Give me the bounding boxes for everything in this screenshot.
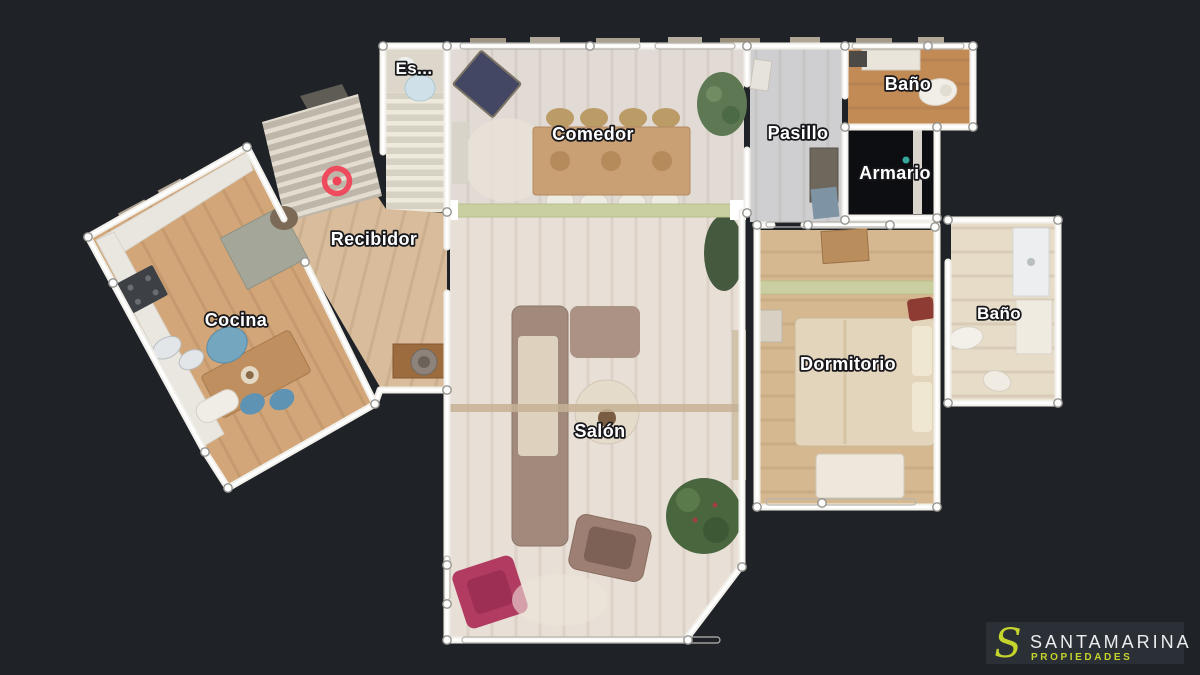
wall-handle (753, 503, 761, 511)
wall-handle (1054, 399, 1062, 407)
office-chair (411, 349, 437, 375)
sideboard (452, 122, 468, 184)
wall-handle (443, 636, 451, 644)
nightstand (760, 310, 782, 342)
wall-handle (933, 123, 941, 131)
wall-handle (84, 233, 92, 241)
wall-handle (933, 214, 941, 222)
room-label-cocina: Cocina (205, 310, 268, 330)
laundry-basket (405, 75, 435, 101)
tag-dot-icon[interactable] (333, 177, 342, 186)
wall-handle (201, 448, 209, 456)
room-label-pasillo: Pasillo (768, 123, 829, 143)
hall-cabinet (811, 187, 840, 220)
bed-bench (816, 454, 904, 498)
bedroom-table (821, 228, 869, 263)
brand-logo: S SANTAMARINA PROPIEDADES (986, 621, 1192, 667)
tall-plant (704, 215, 744, 291)
logo-tagline: PROPIEDADES (1031, 652, 1132, 663)
floorplan-view: Es... Comedor Pasillo Baño Armario Recib… (0, 0, 1200, 675)
room-label-bano-superior: Baño (885, 74, 932, 94)
bed (795, 318, 935, 446)
christmas-tree (666, 478, 742, 554)
shower (1013, 228, 1049, 296)
wall-handle (684, 636, 692, 644)
wall-handle (586, 42, 594, 50)
wall-handle (109, 279, 117, 287)
wall-handle (738, 563, 746, 571)
wall-handle (379, 42, 387, 50)
wall-handle (743, 209, 751, 217)
wall-handle (743, 42, 751, 50)
wall-handle (443, 386, 451, 394)
wall-handle (753, 221, 761, 229)
wall-handle (1054, 216, 1062, 224)
wall-handle (969, 42, 977, 50)
bath-counter (862, 50, 920, 70)
wall-handle (818, 499, 826, 507)
bath-appliance (849, 51, 867, 67)
wall-handle (443, 208, 451, 216)
wall-handle (443, 42, 451, 50)
wall-handle (933, 503, 941, 511)
room-label-bano-derecho: Baño (977, 304, 1021, 323)
wall-handle (931, 223, 939, 231)
wall-handle (969, 123, 977, 131)
wall-handle (804, 221, 812, 229)
bath2-counter (1016, 300, 1052, 354)
salon-rug (512, 574, 608, 626)
room-label-dormitorio: Dormitorio (800, 354, 896, 374)
wall-handle (944, 216, 952, 224)
wall-handle (886, 221, 894, 229)
wall-handle (841, 216, 849, 224)
wall-handle (443, 600, 451, 608)
wall-handle (841, 123, 849, 131)
hall-door (750, 59, 772, 91)
plant (697, 72, 747, 136)
wall-handle (944, 399, 952, 407)
wall-handle (243, 143, 251, 151)
wall-handle (841, 42, 849, 50)
logo-brand-name: SANTAMARINA (1030, 632, 1192, 652)
wall-handle (371, 400, 379, 408)
room-label-salon: Salón (574, 421, 625, 441)
ceiling-beam (450, 404, 740, 412)
wall-handle (924, 42, 932, 50)
room-label-escalera: Es... (396, 59, 433, 78)
room-label-armario: Armario (859, 163, 931, 183)
red-cushion (907, 296, 936, 321)
room-label-comedor: Comedor (552, 124, 634, 144)
room-label-recibidor: Recibidor (331, 229, 418, 249)
logo-s-icon: S (994, 621, 1021, 667)
wall-handle (443, 561, 451, 569)
wall-handle (224, 484, 232, 492)
wall-handle (301, 258, 309, 266)
